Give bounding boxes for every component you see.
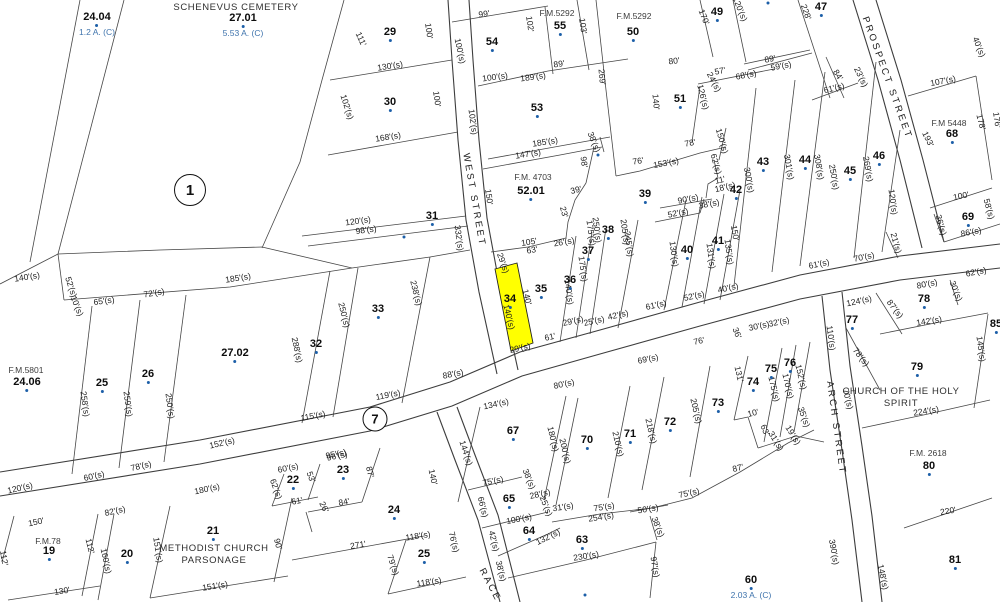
parcel-dot xyxy=(587,258,590,261)
dimension-label: 130' xyxy=(54,586,71,597)
parcel-number: 36 xyxy=(564,274,576,286)
parcel-number: 76 xyxy=(784,357,796,369)
parcel-number: 70 xyxy=(581,434,593,446)
parcel-label[interactable]: 80 xyxy=(923,460,935,476)
parcel-number: 73 xyxy=(712,397,724,409)
parcel-label[interactable]: 78 xyxy=(918,293,930,309)
parcel-label[interactable]: 30 xyxy=(384,96,396,112)
parcel-number: 23 xyxy=(337,464,349,476)
parcel-dot xyxy=(717,248,720,251)
parcel-label[interactable]: 37 xyxy=(582,245,594,261)
parcel-number: 60 xyxy=(731,574,772,586)
parcel-dot xyxy=(735,197,738,200)
parcel-label[interactable]: 25 xyxy=(418,548,430,564)
parcel-number: 25 xyxy=(418,548,430,560)
parcel-dot xyxy=(509,306,512,309)
dimension-label: 140' xyxy=(427,468,439,485)
parcel-dot xyxy=(632,39,635,42)
parcel-number: 19 xyxy=(43,545,55,557)
parcel-label[interactable]: 68 xyxy=(946,128,958,144)
parcel-dot xyxy=(951,141,954,144)
dimension-label: 87' xyxy=(365,466,376,479)
parcel-dot xyxy=(126,561,129,564)
parcel-number: 55 xyxy=(554,20,566,32)
parcel-dot xyxy=(928,473,931,476)
dimension-label: 271' xyxy=(350,540,367,551)
parcel-label[interactable]: 85 xyxy=(990,318,1000,334)
parcel-label[interactable]: 70 xyxy=(581,434,593,450)
parcel-number: 74 xyxy=(747,376,759,388)
parcel-number: 69 xyxy=(962,211,974,223)
dimension-label: 176' xyxy=(992,112,1000,129)
parcel-number: 47 xyxy=(815,1,827,13)
parcel-label[interactable]: 43 xyxy=(757,156,769,172)
parcel-label[interactable]: 21 xyxy=(207,525,219,541)
parcel-dot xyxy=(234,360,237,363)
parcel-dot xyxy=(679,106,682,109)
parcel-label[interactable]: 54 xyxy=(486,36,498,52)
parcel-label[interactable]: 27.01 5.53 A. (C) xyxy=(223,12,264,38)
survey-dot xyxy=(584,594,587,597)
place-name-label: PARSONAGE xyxy=(182,555,247,566)
parcel-number: 79 xyxy=(911,361,923,373)
parcel-number: 29 xyxy=(384,26,396,38)
dimension-label: 220' xyxy=(940,506,957,517)
parcel-dot xyxy=(389,109,392,112)
tax-parcel-map: 140'(s)52'(s)10'(s)65'(s)72'(s)185'(s)25… xyxy=(0,0,1000,602)
parcel-label[interactable]: 49 xyxy=(711,6,723,22)
parcel-label[interactable]: 72 xyxy=(664,416,676,432)
place-name-label: CHURCH OF THE HOLY xyxy=(842,386,959,397)
dimension-label: 131' xyxy=(733,365,745,382)
parcel-label[interactable]: 36 xyxy=(564,274,576,290)
parcel-dot xyxy=(789,370,792,373)
parcel-number: 67 xyxy=(507,425,519,437)
dimension-label: 100' xyxy=(424,23,435,40)
parcel-number: 27.01 xyxy=(223,12,264,24)
parcel-number: 85 xyxy=(990,318,1000,330)
dimension-label: 102' xyxy=(525,16,536,33)
parcel-number: 21 xyxy=(207,525,219,537)
parcel-dot xyxy=(762,169,765,172)
parcel-dot xyxy=(389,39,392,42)
parcel-dot xyxy=(878,163,881,166)
dimension-label: 98' xyxy=(579,156,589,168)
parcel-number: 52.01 xyxy=(517,185,545,197)
parcel-dot xyxy=(581,547,584,550)
parcel-dot xyxy=(559,33,562,36)
parcel-dot xyxy=(569,287,572,290)
parcel-number: 63 xyxy=(576,534,588,546)
parcel-label[interactable]: 44 xyxy=(799,154,811,170)
parcel-dot xyxy=(644,201,647,204)
parcel-dot xyxy=(101,390,104,393)
parcel-number: 24.04 xyxy=(79,11,115,23)
parcel-label[interactable]: 47 xyxy=(815,1,827,17)
dimension-label: 80' xyxy=(668,56,680,66)
parcel-label[interactable]: 27.02 xyxy=(221,347,249,363)
parcel-dot xyxy=(512,438,515,441)
parcel-number: 31 xyxy=(426,210,438,222)
parcel-dot xyxy=(491,49,494,52)
dimension-label: 103' xyxy=(578,18,589,35)
parcel-dot xyxy=(423,561,426,564)
parcel-dot xyxy=(540,296,543,299)
survey-dot xyxy=(767,2,770,5)
parcel-dot xyxy=(717,410,720,413)
filed-map-reference: F.M 5448 xyxy=(932,118,967,128)
route-section-circle: 7 xyxy=(363,407,388,432)
parcel-label[interactable]: 25 xyxy=(96,377,108,393)
parcel-dot xyxy=(954,567,957,570)
parcel-number: 44 xyxy=(799,154,811,166)
parcel-label[interactable]: 60 2.03 A. (C) xyxy=(731,574,772,600)
parcel-dot xyxy=(629,441,632,444)
parcel-dot xyxy=(536,115,539,118)
parcel-dot xyxy=(586,447,589,450)
parcel-number: 25 xyxy=(96,377,108,389)
filed-map-reference: F.M.5292 xyxy=(540,8,575,18)
parcel-number: 43 xyxy=(757,156,769,168)
place-name-label: SCHENEVUS CEMETERY xyxy=(173,2,298,13)
filed-map-reference: F.M.5292 xyxy=(617,11,652,21)
parcel-dot xyxy=(752,389,755,392)
parcel-number: 80 xyxy=(923,460,935,472)
parcel-label[interactable]: 40 xyxy=(681,244,693,260)
parcel-label[interactable]: 79 xyxy=(911,361,923,377)
parcel-dot xyxy=(315,351,318,354)
parcel-label[interactable]: 65 xyxy=(503,493,515,509)
parcel-label[interactable]: 75 xyxy=(765,363,777,379)
parcel-dot xyxy=(923,306,926,309)
parcel-dot xyxy=(431,223,434,226)
dimension-label: 76' xyxy=(632,156,644,166)
parcel-label[interactable]: 55 xyxy=(554,20,566,36)
parcel-number: 75 xyxy=(765,363,777,375)
parcel-label[interactable]: 81 xyxy=(949,554,961,570)
dimension-label: 61' xyxy=(291,496,303,506)
parcel-number: 34 xyxy=(504,293,516,305)
parcel-dot xyxy=(967,224,970,227)
parcel-number: 40 xyxy=(681,244,693,256)
parcel-label[interactable]: 32 xyxy=(310,338,322,354)
parcel-dot xyxy=(770,376,773,379)
parcel-label[interactable]: 20 xyxy=(121,548,133,564)
parcel-dot xyxy=(393,517,396,520)
parcel-label[interactable]: 24.06 xyxy=(13,376,41,392)
dimension-label: 23' xyxy=(558,206,569,219)
dimension-label: 269' xyxy=(597,69,607,86)
dimension-label: 112' xyxy=(0,550,10,566)
parcel-number: 46 xyxy=(873,150,885,162)
parcel-number: 22 xyxy=(287,474,299,486)
parcel-label[interactable]: 26 xyxy=(142,368,154,384)
parcel-label[interactable]: 29 xyxy=(384,26,396,42)
parcel-number: 35 xyxy=(535,283,547,295)
parcel-number: 49 xyxy=(711,6,723,18)
parcel-label[interactable]: 19 xyxy=(43,545,55,561)
parcel-number: 33 xyxy=(372,303,384,315)
parcel-dot xyxy=(48,558,51,561)
filed-map-reference: F.M.5801 xyxy=(9,365,44,375)
parcel-number: 51 xyxy=(674,93,686,105)
parcel-label[interactable]: 41 xyxy=(712,235,724,251)
parcel-dot xyxy=(849,178,852,181)
parcel-number: 20 xyxy=(121,548,133,560)
parcel-acreage: 5.53 A. (C) xyxy=(223,29,264,38)
parcel-label[interactable]: 23 xyxy=(337,464,349,480)
parcel-number: 27.02 xyxy=(221,347,249,359)
parcel-dot xyxy=(820,14,823,17)
parcel-label[interactable]: 31 xyxy=(426,210,438,226)
parcel-label[interactable]: 52.01 xyxy=(517,185,545,201)
survey-dot xyxy=(597,154,600,157)
parcel-number: 54 xyxy=(486,36,498,48)
parcel-label[interactable]: 73 xyxy=(712,397,724,413)
parcel-number: 68 xyxy=(946,128,958,140)
parcel-label[interactable]: 45 xyxy=(844,165,856,181)
parcel-label[interactable]: 39 xyxy=(639,188,651,204)
parcel-number: 77 xyxy=(846,314,858,326)
dimension-label: 89' xyxy=(553,59,565,69)
filed-map-reference: F.M. 2618 xyxy=(909,448,946,458)
parcel-dot xyxy=(292,487,295,490)
parcel-number: 53 xyxy=(531,102,543,114)
filed-map-reference: F.M. 4703 xyxy=(514,172,551,182)
parcel-label[interactable]: 64 xyxy=(523,525,535,541)
route-section-circle: 1 xyxy=(174,174,206,206)
dimension-label: 112' xyxy=(84,538,96,555)
parcel-acreage: 2.03 A. (C) xyxy=(731,591,772,600)
parcel-label[interactable]: 50 xyxy=(627,26,639,42)
parcel-dot xyxy=(508,506,511,509)
parcel-number: 45 xyxy=(844,165,856,177)
parcel-label[interactable]: 38 xyxy=(602,224,614,240)
parcel-dot xyxy=(669,429,672,432)
dimension-label: 84' xyxy=(338,497,350,507)
parcel-number: 24.06 xyxy=(13,376,41,388)
parcel-label[interactable]: 63 xyxy=(576,534,588,550)
parcel-number: 78 xyxy=(918,293,930,305)
parcel-number: 37 xyxy=(582,245,594,257)
parcel-number: 26 xyxy=(142,368,154,380)
parcel-number: 81 xyxy=(949,554,961,566)
parcel-number: 38 xyxy=(602,224,614,236)
parcel-dot xyxy=(804,167,807,170)
parcel-number: 72 xyxy=(664,416,676,428)
dimension-label: 90' xyxy=(273,538,284,551)
parcel-number: 30 xyxy=(384,96,396,108)
parcel-dot xyxy=(607,237,610,240)
dimension-label: 99' xyxy=(478,9,490,19)
survey-dot xyxy=(403,236,406,239)
dimension-label: 63' xyxy=(526,245,538,255)
parcel-number: 50 xyxy=(627,26,639,38)
place-name-label: SPIRIT xyxy=(884,398,918,409)
parcel-label[interactable]: 67 xyxy=(507,425,519,441)
parcel-number: 41 xyxy=(712,235,724,247)
parcel-label[interactable]: 42 xyxy=(730,184,742,200)
parcel-dot xyxy=(995,331,998,334)
parcel-dot xyxy=(686,257,689,260)
parcel-dot xyxy=(212,538,215,541)
dimension-label: 150' xyxy=(484,189,495,206)
dimension-label: 76' xyxy=(693,336,706,347)
parcel-dot xyxy=(147,381,150,384)
parcel-dot xyxy=(377,316,380,319)
parcel-dot xyxy=(26,389,29,392)
parcel-number: 39 xyxy=(639,188,651,200)
parcel-dot xyxy=(530,198,533,201)
parcel-acreage: 1.2 A. (C) xyxy=(79,28,115,37)
parcel-number: 42 xyxy=(730,184,742,196)
parcel-label[interactable]: 33 xyxy=(372,303,384,319)
parcel-label[interactable]: 46 xyxy=(873,150,885,166)
parcel-number: 24 xyxy=(388,504,400,516)
dimension-label: 110'(s) xyxy=(825,325,837,351)
parcel-label[interactable]: 53 xyxy=(531,102,543,118)
parcel-label[interactable]: 24 xyxy=(388,504,400,520)
parcel-label[interactable]: 71 xyxy=(624,428,636,444)
parcel-label[interactable]: 74 xyxy=(747,376,759,392)
parcel-dot xyxy=(851,327,854,330)
parcel-number: 65 xyxy=(503,493,515,505)
dimension-label: 78' xyxy=(684,138,696,148)
parcel-label[interactable]: 77 xyxy=(846,314,858,330)
parcel-label[interactable]: 24.04 1.2 A. (C) xyxy=(79,11,115,37)
parcel-label[interactable]: 69 xyxy=(962,211,974,227)
parcel-dot xyxy=(528,538,531,541)
parcel-number: 64 xyxy=(523,525,535,537)
parcel-label[interactable]: 51 xyxy=(674,93,686,109)
dimension-label: 140' xyxy=(651,94,661,111)
parcel-dot xyxy=(916,374,919,377)
parcel-number: 32 xyxy=(310,338,322,350)
place-name-label: METHODIST CHURCH xyxy=(159,543,268,554)
parcel-label[interactable]: 34 xyxy=(504,293,516,309)
parcel-label[interactable]: 35 xyxy=(535,283,547,299)
dimension-label: 100' xyxy=(432,91,443,108)
filed-map-reference: F.M.78 xyxy=(35,536,61,546)
parcel-dot xyxy=(342,477,345,480)
parcel-label[interactable]: 76 xyxy=(784,357,796,373)
parcel-number: 71 xyxy=(624,428,636,440)
parcel-dot xyxy=(716,19,719,22)
parcel-label[interactable]: 22 xyxy=(287,474,299,490)
dimension-label: 61' xyxy=(544,332,557,343)
